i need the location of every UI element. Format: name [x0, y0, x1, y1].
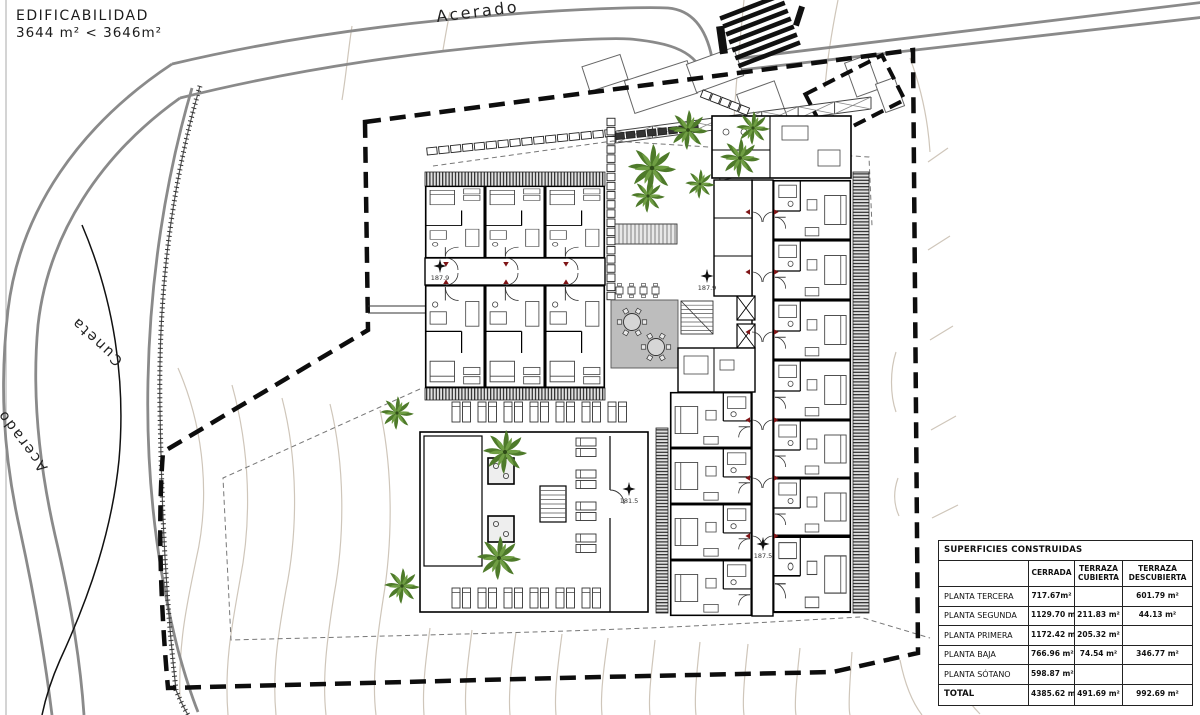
table-corner-cell: [939, 561, 1029, 587]
cell-value: 44.13 m²: [1123, 606, 1193, 626]
wall-bar: [793, 6, 805, 27]
sunbed-pair: [530, 402, 549, 422]
wall-pier: [607, 210, 615, 218]
wall-pier: [427, 147, 438, 155]
stair-main: [615, 224, 677, 244]
wall-pier: [498, 140, 509, 148]
cell-value: 346.77 m²: [1123, 645, 1193, 665]
wall-pier: [450, 145, 461, 153]
wall-pier: [607, 173, 615, 181]
sunbed-pair: [478, 402, 497, 422]
apartment-unit: [486, 286, 545, 388]
guest-room-block: [678, 348, 755, 392]
wall-pier: [607, 256, 615, 264]
cell-value: 717.67m²: [1029, 587, 1075, 607]
row-label: PLANTA TERCERA: [939, 587, 1029, 607]
sunbed-pair: [452, 402, 471, 422]
tree: [668, 110, 708, 150]
apartment-unit: [546, 187, 605, 258]
wall-pier: [462, 143, 473, 151]
table-row: PLANTA TERCERA 717.67m² 601.79 m²: [939, 587, 1193, 607]
sunbed-pair: [504, 402, 523, 422]
chair: [642, 320, 646, 324]
wall-pier: [569, 133, 580, 141]
apartment-unit: [774, 479, 851, 536]
title-block: EDIFICABILIDAD 3644 m² < 3646m²: [16, 8, 162, 41]
tree: [384, 568, 420, 604]
curb-line: [160, 86, 200, 715]
service-rooms: [714, 180, 752, 296]
curb-ticks: [160, 86, 200, 715]
chair: [654, 284, 658, 287]
chair: [630, 284, 634, 287]
row-label: TOTAL: [939, 684, 1029, 705]
cell-value: 491.69 m²: [1075, 684, 1123, 705]
ditch-line: [42, 225, 121, 715]
balcony-strip: [853, 172, 869, 613]
row-label: PLANTA PRIMERA: [939, 626, 1029, 646]
wall-pier: [439, 146, 450, 154]
wall-pier: [700, 90, 711, 100]
tree: [380, 396, 414, 430]
wall-pier: [607, 246, 615, 254]
elevation-value: 187.9: [698, 284, 717, 292]
elevation-value: 187.9: [431, 274, 450, 282]
wall-pier: [522, 137, 533, 145]
round-table: [624, 314, 641, 331]
wall-pier: [474, 142, 485, 150]
chair: [666, 345, 670, 349]
wall-pier: [729, 101, 740, 111]
apartment-unit: [774, 181, 851, 240]
apartment-unit: [671, 505, 752, 560]
road-label-cuneta: Cuneta: [68, 313, 126, 368]
wall-pier: [607, 192, 615, 200]
wall-pier: [510, 139, 521, 147]
edificabilidad-values: 3644 m² < 3646m²: [16, 25, 162, 41]
apartment-unit: [774, 421, 851, 478]
apartment-unit: [774, 361, 851, 420]
apartment-unit: [774, 241, 851, 300]
row-label: PLANTA BAJA: [939, 645, 1029, 665]
cafe-table: [628, 287, 635, 294]
wall-pier: [615, 132, 624, 139]
tree: [628, 144, 676, 192]
cell-value: 992.69 m²: [1123, 684, 1193, 705]
wall-pier: [607, 127, 615, 135]
wall-pier: [719, 97, 730, 107]
wall-pier: [710, 94, 721, 104]
apartment-unit: [546, 286, 605, 388]
apartment-unit: [671, 393, 752, 448]
apartment-unit: [426, 187, 485, 258]
main-building: [368, 116, 869, 616]
table-total-row: TOTAL 4385.62 m² 491.69 m² 992.69 m²: [939, 684, 1193, 705]
wall-pier: [607, 265, 615, 273]
existing-shed: [686, 47, 743, 92]
chair: [641, 345, 645, 349]
site-plan-sheet: Acerado Cuneta Acerado 187.9 187.9 181.5…: [0, 0, 1200, 715]
chair: [654, 295, 658, 298]
chair: [642, 295, 646, 298]
apartment-unit: [774, 537, 851, 612]
cell-value: 766.96 m²: [1029, 645, 1075, 665]
cell-value: 1129.70 m²: [1029, 606, 1075, 626]
cafe-table: [640, 287, 647, 294]
tree: [631, 179, 665, 213]
cafe-table: [616, 287, 623, 294]
cell-value: [1075, 665, 1123, 685]
chair: [618, 295, 622, 298]
table-title: SUPERFICIES CONSTRUIDAS: [939, 541, 1193, 561]
cafe-table: [652, 287, 659, 294]
existing-shed: [582, 54, 628, 91]
chair: [642, 284, 646, 287]
wall-pier: [658, 128, 667, 135]
wall-pier: [607, 164, 615, 172]
cell-value: 4385.62 m²: [1029, 684, 1075, 705]
wall-pier: [593, 130, 604, 138]
cell-value: 598.87 m²: [1029, 665, 1075, 685]
elevation-star: [701, 270, 714, 283]
chair: [618, 284, 622, 287]
pool: [424, 436, 482, 566]
elevation-value: 187.5: [754, 552, 773, 560]
wall-pier: [607, 228, 615, 236]
wall-pier: [607, 237, 615, 245]
sunbed-pair: [608, 402, 627, 422]
wall-pier: [607, 137, 615, 145]
wall-pier: [545, 135, 556, 143]
apartment-unit: [426, 286, 485, 388]
table-row: PLANTA SÓTANO 598.87 m²: [939, 665, 1193, 685]
apartment-unit: [671, 561, 752, 616]
cell-value: [1075, 587, 1123, 607]
sunbed-pair: [556, 402, 575, 422]
elevation-value: 181.5: [620, 497, 639, 505]
row-label: PLANTA SEGUNDA: [939, 606, 1029, 626]
sunbed-pair: [582, 402, 601, 422]
wall-pier: [607, 201, 615, 209]
apartment-unit: [774, 301, 851, 360]
chair: [617, 320, 621, 324]
balcony-strip: [656, 428, 668, 613]
wall-pier: [607, 118, 615, 126]
existing-shed: [624, 61, 697, 114]
cell-value: 211.83 m²: [1075, 606, 1123, 626]
built-areas-table: SUPERFICIES CONSTRUIDAS CERRADA TERRAZA …: [938, 540, 1193, 706]
wall-pier: [533, 136, 544, 144]
round-table: [648, 339, 665, 356]
cell-value: 601.79 m²: [1123, 587, 1193, 607]
pergola-strip: [425, 388, 605, 400]
corridor-es: [752, 180, 773, 616]
col-header-cerrada: CERRADA: [1029, 561, 1075, 587]
cell-value: 205.32 m²: [1075, 626, 1123, 646]
wall-pier: [637, 130, 646, 137]
col-header-terraza-cubierta: TERRAZA CUBIERTA: [1075, 561, 1123, 587]
tree: [685, 169, 714, 198]
cell-value: [1123, 665, 1193, 685]
wall-pier: [607, 283, 615, 291]
col-header-terraza-descubierta: TERRAZA DESCUBIERTA: [1123, 561, 1193, 587]
table-row: PLANTA PRIMERA 1172.42 m² 205.32 m²: [939, 626, 1193, 646]
wall-pier: [557, 134, 568, 142]
wall-pier: [581, 131, 592, 139]
wall-bar: [716, 26, 728, 55]
cell-value: [1123, 626, 1193, 646]
table-row: PLANTA BAJA 766.96 m² 74.54 m² 346.77 m²: [939, 645, 1193, 665]
wall-pier: [607, 146, 615, 154]
cafe-tables-row: [616, 284, 659, 298]
wall-pier: [607, 182, 615, 190]
apartment-unit: [486, 187, 545, 258]
wall-pier: [486, 141, 497, 149]
pool-deck: [420, 402, 648, 612]
cell-value: 1172.42 m²: [1029, 626, 1075, 646]
wall-pier: [607, 274, 615, 282]
row-label: PLANTA SÓTANO: [939, 665, 1029, 685]
wall-pier: [626, 131, 635, 138]
chair: [630, 295, 634, 298]
edificabilidad-label: EDIFICABILIDAD: [16, 8, 162, 24]
pergola-strip: [425, 172, 605, 186]
wall-pier: [647, 129, 656, 136]
apartment-unit: [671, 449, 752, 504]
cell-value: 74.54 m²: [1075, 645, 1123, 665]
table-row: PLANTA SEGUNDA 1129.70 m² 211.83 m² 44.1…: [939, 606, 1193, 626]
wall-pier: [607, 219, 615, 227]
wall-pier: [607, 155, 615, 163]
terrace-deck: [611, 300, 678, 368]
existing-shed: [845, 55, 880, 97]
road-label-acerado-top: Acerado: [435, 0, 520, 26]
wall-pier: [607, 292, 615, 300]
